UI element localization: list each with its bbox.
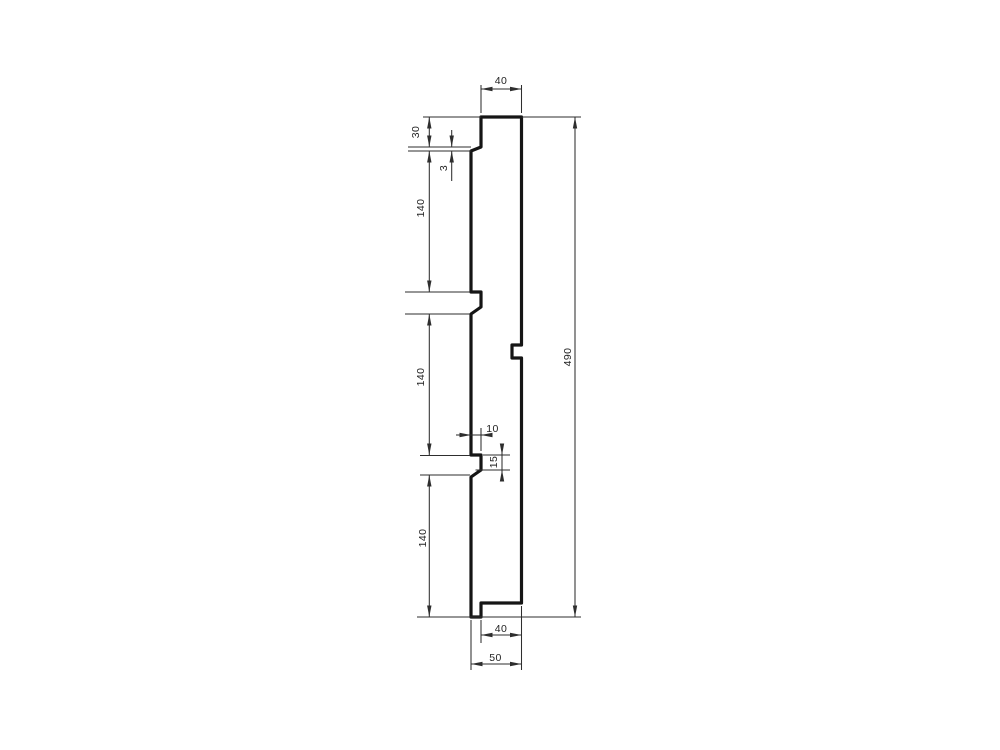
dim-label-segment-middle: 140 — [416, 368, 427, 387]
profile-technical-drawing — [0, 0, 1000, 750]
dim-label-groove-height: 15 — [488, 456, 499, 468]
dim-label-bottom-rebate-width: 40 — [495, 624, 507, 635]
dim-label-overall-width: 50 — [489, 653, 501, 664]
dim-label-cap-height: 30 — [410, 126, 421, 138]
profile-outline — [471, 117, 522, 617]
drawing-canvas: 40 30 3 140 140 10 15 140 490 40 50 — [0, 0, 1000, 750]
dim-label-groove-depth: 10 — [486, 424, 498, 435]
dim-label-top-width: 40 — [495, 75, 507, 86]
dim-label-overall-height: 490 — [563, 348, 574, 367]
dim-label-segment-lower: 140 — [418, 529, 429, 548]
dim-label-cap-undercut: 3 — [439, 165, 450, 171]
dim-label-segment-upper: 140 — [416, 199, 427, 218]
